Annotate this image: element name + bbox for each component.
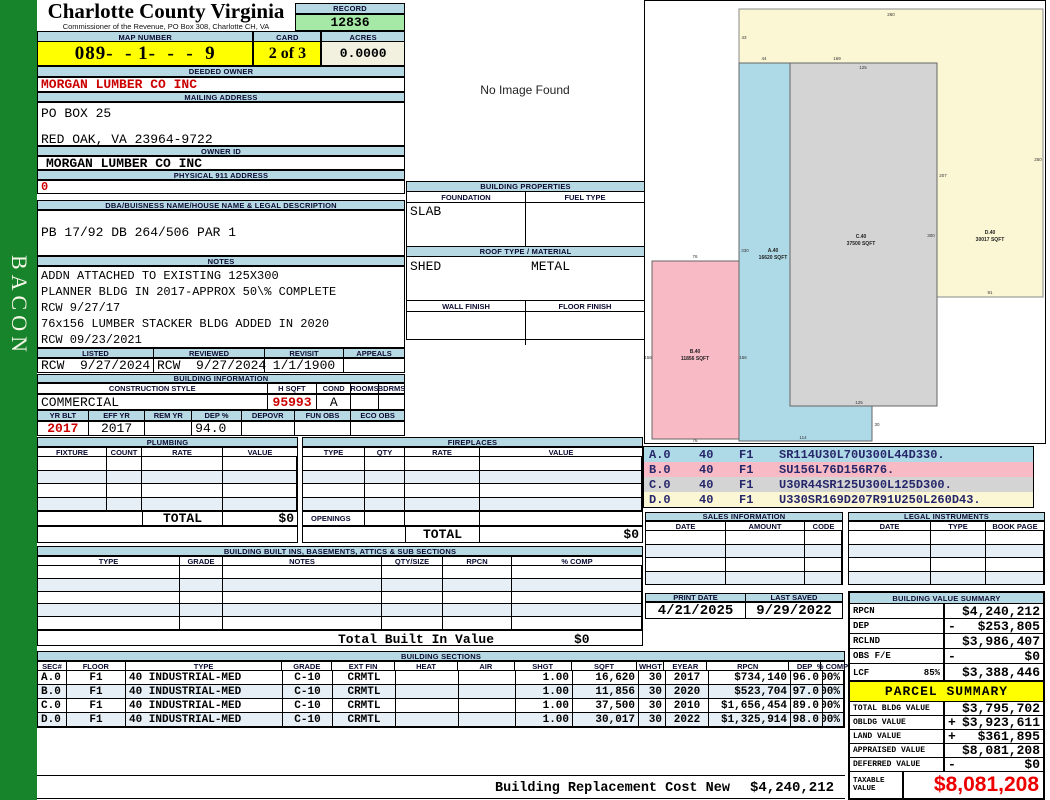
cell [382, 579, 443, 591]
bottom-divider [37, 775, 845, 776]
cell [726, 572, 805, 585]
property-record-card: BACON Charlotte County Virginia Commissi… [0, 0, 1050, 800]
vector-string: U330SR169D207R91U250L260D43. [779, 493, 981, 507]
cell: C-10 [283, 699, 333, 712]
vector-floor: F1 [739, 478, 779, 492]
dep-pct-label: DEP % [192, 411, 242, 420]
cell: 16,620 [573, 671, 639, 684]
svg-text:76: 76 [692, 438, 698, 443]
cell [405, 471, 480, 484]
dep-pct-value: 94.0 [192, 422, 242, 435]
summary-value: $253,805 [960, 619, 1040, 634]
vector-floor: F1 [739, 448, 779, 462]
cell [142, 498, 223, 511]
vector-code: 40 [699, 478, 739, 492]
sketch-vector-row: C.0 40 F1 U30R44SR125U300L125D300. [644, 477, 1033, 492]
cell: 100% [823, 685, 844, 698]
vector-floor: F1 [739, 493, 779, 507]
cell [396, 699, 459, 712]
svg-text:B.40: B.40 [690, 349, 701, 355]
cell [405, 484, 480, 497]
svg-text:114: 114 [799, 435, 807, 440]
fuel-type-label: FUEL TYPE [526, 192, 644, 202]
sections-col-grade: GRADE [282, 662, 332, 670]
plumbing-total-spacer [38, 512, 142, 525]
eco-obs-label: ECO OBS [351, 411, 404, 420]
cell: 97.0 [791, 685, 823, 698]
svg-text:330: 330 [741, 248, 749, 253]
parcel-value: $0 [960, 757, 1040, 772]
cell [365, 484, 405, 497]
vector-string: SR114U30L70U300L44D330. [779, 448, 945, 462]
svg-text:30: 30 [874, 422, 880, 427]
vector-sec: D.0 [644, 493, 699, 507]
mailing-address-block: PO BOX 25 RED OAK, VA 23964-9722 [37, 102, 405, 146]
vector-string: SU156L76D156R76. [779, 463, 894, 477]
cell: C-10 [283, 685, 333, 698]
fuel-type-value [526, 203, 644, 246]
table-row: D.0F140 INDUSTRIAL-MEDC-10CRMTL1.0030,01… [38, 713, 844, 727]
cell [986, 572, 1044, 585]
svg-text:125: 125 [859, 65, 867, 70]
cell: $523,704 [709, 685, 791, 698]
svg-text:207: 207 [939, 173, 947, 178]
floor-finish-label: FLOOR FINISH [526, 301, 644, 311]
owner-id-value: MORGAN LUMBER CO INC [37, 156, 405, 170]
built-ins-col-grade: GRADE [180, 557, 223, 565]
cell [512, 579, 642, 591]
cell: 40 INDUSTRIAL-MED [126, 713, 283, 726]
cell: 37,500 [573, 699, 639, 712]
note-line: RCW 09/23/2021 [38, 332, 404, 348]
eco-obs-value [351, 422, 404, 435]
built-ins-total-label: Total Built In Value [338, 632, 494, 647]
plumbing-footer [37, 526, 298, 543]
cell [396, 685, 459, 698]
vector-string: U30R44SR125U300L125D300. [779, 478, 952, 492]
cell [805, 531, 842, 544]
parcel-value: $3,795,702 [960, 701, 1040, 716]
replacement-cost-value: $4,240,212 [742, 780, 834, 796]
cond-label: COND [317, 384, 351, 393]
sections-col-shgt: SHGT [515, 662, 572, 670]
cell [365, 457, 405, 470]
legal-col-date: DATE [849, 522, 931, 530]
building-information-label: BUILDING INFORMATION [37, 374, 405, 383]
fireplaces-openings-value [480, 512, 642, 525]
legal-col-type: TYPE [931, 522, 986, 530]
cond-value: A [317, 395, 351, 409]
fireplaces-label: FIREPLACES [302, 437, 643, 447]
table-row [38, 566, 642, 579]
building-value-summary: BUILDING VALUE SUMMARY RPCN $4,240,212 D… [848, 591, 1045, 683]
note-line: ADDN ATTACHED TO EXISTING 125X300 [38, 268, 404, 284]
fun-obs-value [295, 422, 352, 435]
acres-value: 0.0000 [321, 41, 405, 66]
legal-col-bookpage: BOOK PAGE [986, 522, 1044, 530]
cell [405, 498, 480, 511]
vector-sec: B.0 [644, 463, 699, 477]
sketch-vectors: A.0 40 F1 SR114U30L70U300L44D330. B.0 40… [643, 446, 1034, 508]
mailing-address-label: MAILING ADDRESS [37, 92, 405, 102]
cell: 11,856 [573, 685, 639, 698]
built-ins-label: BUILDING BUILT INS, BASEMENTS, ATTICS & … [37, 546, 643, 556]
cell: $1,656,454 [709, 699, 791, 712]
sketch-vector-row: D.0 40 F1 U330SR169D207R91U250L260D43. [644, 492, 1033, 507]
cell [459, 671, 516, 684]
table-row: C.0F140 INDUSTRIAL-MEDC-10CRMTL1.0037,50… [38, 699, 844, 713]
parcel-label: DEFERRED VALUE [853, 760, 920, 769]
cell: F1 [67, 699, 126, 712]
fireplaces-openings-qty [365, 512, 405, 525]
fun-obs-label: FUN OBS [295, 411, 352, 420]
cell: 96.0 [791, 671, 823, 684]
vector-code: 40 [699, 448, 739, 462]
construction-style-value: COMMERCIAL [38, 395, 268, 409]
cell: 2017 [666, 671, 709, 684]
summary-row: RPCN $4,240,212 [850, 604, 1043, 619]
table-row [646, 572, 842, 586]
vector-floor: F1 [739, 463, 779, 477]
svg-text:C.40: C.40 [856, 234, 867, 240]
cell [38, 617, 180, 629]
svg-text:300: 300 [927, 233, 935, 238]
cell [382, 566, 443, 578]
cell: 2022 [666, 713, 709, 726]
parcel-op: - [948, 757, 960, 772]
legal-description-label: DBA/BUISNESS NAME/HOUSE NAME & LEGAL DES… [37, 200, 405, 210]
cell [38, 498, 107, 511]
depovr-value [242, 422, 295, 435]
cell: A.0 [38, 671, 67, 684]
listed-value: RCW 9/27/2024 [38, 359, 154, 372]
bdrms-value [379, 395, 404, 409]
cell [382, 604, 443, 616]
cell: C-10 [283, 671, 333, 684]
print-date-label: PRINT DATE [646, 594, 746, 601]
table-row [849, 531, 1044, 545]
record-label: RECORD [295, 3, 405, 14]
cell [459, 699, 516, 712]
cell [142, 471, 223, 484]
cell [512, 592, 642, 604]
card-value: 2 of 3 [253, 41, 321, 66]
built-ins-col-type: TYPE [38, 557, 180, 565]
vector-code: 40 [699, 463, 739, 477]
cell: 89.0 [791, 699, 823, 712]
physical-911-value: 0 [37, 180, 405, 194]
summary-label: DEP [853, 621, 869, 631]
taxable-label: TAXABLE VALUE [850, 772, 904, 798]
cell: D.0 [38, 713, 67, 726]
sections-col-sqft: SQFT [572, 662, 638, 670]
cell: F1 [67, 685, 126, 698]
cell [303, 471, 365, 484]
summary-value: $3,388,446 [960, 665, 1040, 680]
sales-information-label: SALES INFORMATION [645, 512, 843, 521]
sections-col-comp: % COMP [821, 662, 844, 670]
building-value-summary-label: BUILDING VALUE SUMMARY [850, 593, 1043, 604]
cell: CRMTL [333, 713, 396, 726]
parcel-label: APPRAISED VALUE [853, 746, 925, 755]
svg-text:43: 43 [741, 35, 747, 40]
sales-col-code: CODE [805, 522, 842, 530]
svg-text:250: 250 [1034, 157, 1042, 162]
cell: 1.00 [516, 685, 573, 698]
cell [480, 484, 642, 497]
svg-text:30017 SQFT: 30017 SQFT [976, 237, 1005, 243]
fireplaces-col-rate: RATE [405, 448, 480, 456]
cell: 2020 [666, 685, 709, 698]
svg-text:76: 76 [692, 254, 698, 259]
cell: 30 [639, 671, 666, 684]
cell [849, 531, 931, 544]
cell [931, 545, 986, 558]
cell: CRMTL [333, 671, 396, 684]
table-row [849, 545, 1044, 559]
summary-label: RPCN [853, 606, 875, 616]
table-row [646, 545, 842, 559]
built-ins-col-qty-size: QTY/SIZE [382, 557, 443, 565]
cell: 30,017 [573, 713, 639, 726]
notes-label: NOTES [37, 256, 405, 266]
foundation-value: SLAB [407, 203, 526, 246]
appeals-label: APPEALS [344, 349, 404, 357]
cell [38, 484, 107, 497]
cell [223, 604, 382, 616]
cell [512, 604, 642, 616]
cell [107, 471, 142, 484]
table-row [646, 558, 842, 572]
yr-blt-label: YR BLT [38, 411, 89, 420]
floor-finish-value [526, 312, 644, 345]
last-saved-label: LAST SAVED [746, 594, 842, 601]
cell: C.0 [38, 699, 67, 712]
deeded-owner-label: DEEDED OWNER [37, 66, 405, 77]
sidebar: BACON [0, 0, 37, 800]
cell [142, 484, 223, 497]
sketch-vector-row: A.0 40 F1 SR114U30L70U300L44D330. [644, 447, 1033, 462]
cell: 1.00 [516, 713, 573, 726]
fireplaces-total-label: TOTAL [405, 527, 480, 542]
table-row [849, 558, 1044, 572]
cell [180, 566, 223, 578]
cell [223, 498, 297, 511]
sections-col-extfin: EXT FIN [332, 662, 395, 670]
svg-text:37500 SQFT: 37500 SQFT [847, 241, 876, 247]
svg-text:156: 156 [645, 355, 652, 360]
cell [180, 617, 223, 629]
cell [849, 558, 931, 571]
map-number-value: 089- - 1- - - 9 [37, 41, 253, 66]
svg-text:A.40: A.40 [768, 248, 779, 254]
parcel-label: TOTAL BLDG VALUE [853, 704, 930, 713]
legal-description-block: PB 17/92 DB 264/506 PAR 1 [37, 210, 405, 256]
legal-instruments-table [848, 531, 1045, 585]
table-row [646, 531, 842, 545]
cell [480, 471, 642, 484]
legal-instruments-label: LEGAL INSTRUMENTS [848, 512, 1045, 521]
parcel-value: $3,923,611 [960, 715, 1040, 730]
parcel-row: APPRAISED VALUE $8,081,208 [850, 744, 1043, 758]
cell [396, 671, 459, 684]
cell [480, 457, 642, 470]
cell [931, 558, 986, 571]
summary-label: RCLND [853, 636, 880, 646]
table-row [38, 471, 297, 485]
cell [303, 457, 365, 470]
cell: 40 INDUSTRIAL-MED [126, 699, 283, 712]
legal-description-value: PB 17/92 DB 264/506 PAR 1 [41, 225, 236, 240]
cell [986, 558, 1044, 571]
cell [459, 685, 516, 698]
note-line: 76x156 LUMBER STACKER BLDG ADDED IN 2020 [38, 316, 404, 332]
cell [396, 713, 459, 726]
cell [726, 545, 805, 558]
built-ins-table [37, 566, 643, 630]
cell [459, 713, 516, 726]
bdrms-label: BDRMS [379, 384, 404, 393]
svg-text:11856 SQFT: 11856 SQFT [681, 356, 709, 362]
notes-block: ADDN ATTACHED TO EXISTING 125X300 PLANNE… [37, 266, 405, 348]
replacement-cost-label: Building Replacement Cost New [495, 781, 730, 796]
sidebar-vertical-label: BACON [6, 255, 32, 357]
cell [107, 457, 142, 470]
sections-col-heat: HEAT [395, 662, 458, 670]
cell [931, 531, 986, 544]
svg-text:156: 156 [739, 355, 747, 360]
cell [405, 457, 480, 470]
sales-col-date: DATE [646, 522, 726, 530]
cell: 100% [823, 713, 844, 726]
record-number: 12836 [295, 14, 405, 31]
wall-finish-value [407, 312, 526, 345]
table-row: B.0F140 INDUSTRIAL-MEDC-10CRMTL1.0011,85… [38, 685, 844, 699]
revisit-label: REVISIT [265, 349, 344, 357]
bottom-border [37, 798, 845, 799]
reviewed-value: RCW 9/27/2024 [154, 359, 265, 372]
reviewed-label: REVIEWED [154, 349, 265, 357]
deeded-owner-value: MORGAN LUMBER CO INC [37, 77, 405, 92]
cell [480, 498, 642, 511]
cell [223, 457, 297, 470]
cell: 30 [639, 699, 666, 712]
taxable-value: $8,081,208 [904, 772, 1043, 798]
building-sections-table: A.0F140 INDUSTRIAL-MEDC-10CRMTL1.0016,62… [37, 671, 845, 728]
sketch-panel: 260 43 250 169 207 91 125 300 125 44 330… [644, 0, 1046, 444]
cell [38, 457, 107, 470]
cell [931, 572, 986, 585]
wall-finish-label: WALL FINISH [407, 301, 526, 311]
cell [443, 579, 512, 591]
cell [986, 531, 1044, 544]
cell: 100% [823, 699, 844, 712]
summary-row: LCF85% $3,388,446 [850, 664, 1043, 681]
sections-col-whgt: WHGT [637, 662, 664, 670]
cell [223, 592, 382, 604]
table-row [849, 572, 1044, 586]
revisit-value: 1/1/1900 [265, 359, 344, 372]
summary-value: $3,986,407 [960, 634, 1040, 649]
cell: 1.00 [516, 699, 573, 712]
cell: 98.0 [791, 713, 823, 726]
table-row [303, 498, 642, 512]
construction-style-label: CONSTRUCTION STYLE [38, 384, 268, 393]
cell: CRMTL [333, 699, 396, 712]
rooms-label: ROOMS [351, 384, 379, 393]
parcel-row: LAND VALUE +$361,895 [850, 730, 1043, 744]
cell [180, 579, 223, 591]
cell [223, 579, 382, 591]
fireplaces-total-value: $0 [480, 527, 642, 542]
plumbing-label: PLUMBING [37, 437, 298, 447]
rem-yr-value [145, 422, 192, 435]
table-row: A.0F140 INDUSTRIAL-MEDC-10CRMTL1.0016,62… [38, 671, 844, 685]
yr-blt-value: 2017 [38, 422, 89, 435]
cell [38, 566, 180, 578]
fireplaces-col-qty: QTY [365, 448, 405, 456]
svg-text:91: 91 [987, 290, 993, 295]
roof-material-value: METAL [531, 259, 570, 274]
sections-col-eyear: EYEAR [664, 662, 707, 670]
no-image-text: No Image Found [480, 83, 569, 97]
cell [512, 617, 642, 629]
hsqft-label: H SQFT [268, 384, 318, 393]
table-row [38, 579, 642, 592]
cell [107, 484, 142, 497]
parcel-row: TOTAL BLDG VALUE $3,795,702 [850, 702, 1043, 716]
summary-pct: 85% [924, 668, 940, 678]
cell [142, 457, 223, 470]
sketch-drawing: 260 43 250 169 207 91 125 300 125 44 330… [645, 1, 1045, 443]
cell [646, 572, 726, 585]
cell [38, 471, 107, 484]
cell [986, 545, 1044, 558]
parcel-summary-title: PARCEL SUMMARY [850, 682, 1043, 702]
cell [443, 604, 512, 616]
note-line: RCW 9/27/17 [38, 300, 404, 316]
plumbing-total-value: $0 [223, 512, 297, 525]
sections-col-floor: FLOOR [67, 662, 126, 670]
built-ins-total-value: $0 [574, 632, 590, 647]
built-ins-col-notes: NOTES [223, 557, 382, 565]
building-properties-panel: BUILDING PROPERTIES FOUNDATION FUEL TYPE… [406, 181, 645, 340]
rem-yr-label: REM YR [145, 411, 192, 420]
county-title: Charlotte County Virginia [37, 1, 295, 22]
summary-value: $0 [960, 649, 1040, 664]
table-row [303, 457, 642, 471]
sales-col-amount: AMOUNT [726, 522, 805, 530]
cell [180, 592, 223, 604]
svg-text:16620 SQFT: 16620 SQFT [759, 255, 788, 261]
eff-yr-label: EFF YR [89, 411, 146, 420]
cell: B.0 [38, 685, 67, 698]
summary-op: - [948, 649, 960, 664]
owner-id-label: OWNER ID [37, 146, 405, 156]
taxable-row: TAXABLE VALUE $8,081,208 [850, 772, 1043, 798]
built-ins-col-rpcn: RPCN [443, 557, 512, 565]
table-row [303, 471, 642, 485]
last-saved-value: 9/29/2022 [746, 603, 842, 618]
fireplaces-openings-label: OPENINGS [303, 512, 365, 525]
parcel-summary: PARCEL SUMMARY TOTAL BLDG VALUE $3,795,7… [848, 680, 1045, 800]
county-subtitle: Commissioner of the Revenue, PO Box 308,… [37, 22, 295, 31]
cell: 40 INDUSTRIAL-MED [126, 685, 283, 698]
building-properties-label: BUILDING PROPERTIES [407, 182, 644, 192]
cell [849, 545, 931, 558]
cell [365, 471, 405, 484]
cell [365, 498, 405, 511]
